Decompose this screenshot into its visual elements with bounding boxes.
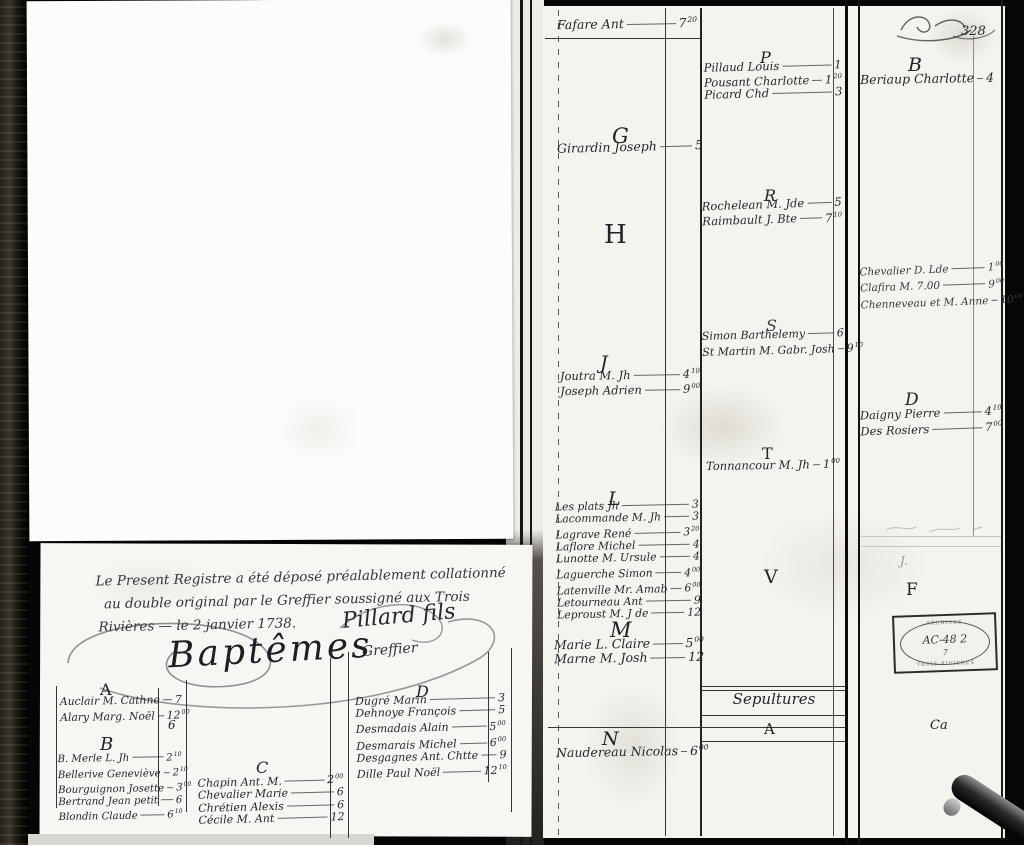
entry-value: 600: [684, 579, 700, 595]
entry-name: St Martin M. Gabr. Josh: [702, 342, 835, 358]
entry-name: Bellerive Geneviève: [58, 768, 161, 782]
entry-name: Beriaup Charlotte: [860, 71, 974, 87]
entry-value-sup: 00: [184, 781, 192, 788]
section-d-entries: Daigny Pierre410Des Rosiers700: [859, 402, 1002, 439]
rule-line: [701, 686, 845, 687]
entry-value: 210: [166, 749, 182, 764]
left-section-b-entries: B. Merle L. Jh210Bellerive Geneviève210B…: [57, 749, 182, 824]
faint-rule-line: [861, 546, 1001, 547]
entry-name: Joseph Adrien: [560, 384, 642, 398]
entry-value-sup: 00: [335, 772, 344, 780]
entry-value: 12: [688, 649, 704, 663]
entry-name: Blondin Claude: [58, 810, 137, 823]
leader-dash: [932, 427, 982, 430]
entry-value-sup: 00: [993, 419, 1002, 427]
leader-dash: [141, 814, 164, 815]
entry-value-sup: 10: [174, 751, 182, 758]
entry-name: Lunotte M. Ursule: [556, 552, 657, 566]
leader-dash: [808, 332, 834, 334]
section-g-entries: Girardin Joseph5: [557, 138, 703, 156]
entry-name: Alary Marg. Noël: [60, 709, 155, 724]
entry-value: 6: [176, 794, 183, 806]
register-entry: Joseph Adrien900: [560, 380, 700, 398]
leader-dash: [627, 23, 676, 25]
section-letter-f: F: [906, 580, 918, 600]
entry-value: 900: [988, 274, 1004, 291]
entry-value: 6: [837, 326, 844, 339]
leader-dash: [651, 612, 684, 614]
leader-dash: [622, 504, 689, 506]
leader-dash: [660, 556, 691, 558]
rule-line: [348, 652, 349, 838]
stray-value: 6: [168, 718, 176, 732]
leader-dash: [681, 751, 687, 752]
entry-value: 5: [498, 704, 505, 717]
entry-name: Naudereau Nicolas: [556, 744, 678, 760]
section-r-entries: Rochelean M. Jde5Raimbault J. Bte710: [702, 196, 843, 229]
entry-name: B. Merle L. Jh: [57, 753, 129, 766]
entry-name: Leproust M. J de: [557, 608, 649, 622]
entry-value: 300: [176, 779, 192, 794]
leader-dash: [653, 643, 682, 645]
register-entry: Cécile M. Ant12: [198, 812, 344, 828]
entry-name: Raimbault J. Bte: [702, 212, 797, 228]
entry-value: 9: [499, 749, 506, 762]
entry-value: 600: [490, 733, 507, 749]
entry-name: Laguerche Simon: [556, 568, 653, 582]
sepultures-heading: Sepultures: [714, 690, 834, 708]
leader-dash: [161, 799, 173, 800]
entry-name: Simon Barthelemy: [702, 327, 806, 343]
leader-dash: [943, 283, 985, 285]
entry-name: Girardin Joseph: [557, 139, 657, 156]
leader-dash: [812, 80, 822, 81]
register-entry: Beriaup Charlotte4: [860, 71, 988, 87]
rule-line: [701, 741, 845, 742]
entry-value-sup: 00: [996, 277, 1004, 284]
leader-dash: [167, 787, 173, 788]
entry-value: 600: [690, 741, 709, 758]
leader-dash: [807, 202, 831, 204]
entry-value-sup: 00: [995, 261, 1003, 268]
entry-name: Marne M. Josh: [554, 650, 648, 665]
page-content: Fafare Ant720 G Girardin Joseph5 H J Jou…: [0, 0, 1024, 845]
entry-name: Cécile M. Ant: [198, 813, 274, 828]
entry-value-sup: 00: [498, 735, 507, 743]
rule-line: [56, 686, 57, 808]
entry-value: 710: [825, 208, 843, 224]
left-section-c-entries: Chapin Ant. M.200Chevalier Marie6Chrétie…: [197, 770, 344, 828]
entry-value: 7: [175, 693, 182, 706]
leader-dash: [291, 792, 334, 794]
leader-dash: [158, 715, 164, 716]
entry-value-sup: 10: [833, 210, 842, 218]
leader-dash: [952, 267, 985, 269]
entry-value: 500: [685, 633, 704, 650]
scanned-register-spread: Fafare Ant720 G Girardin Joseph5 H J Jou…: [0, 0, 1024, 845]
entry-value: 610: [167, 806, 183, 821]
rule-line: [558, 10, 559, 836]
leader-dash: [645, 389, 680, 391]
faint-pencil-marks: [880, 518, 990, 540]
entry-name: Tonnancour M. Jh: [706, 458, 810, 473]
leader-dash: [443, 771, 480, 773]
entry-value: 910: [846, 339, 863, 355]
entry-value-sup: 10: [175, 808, 183, 815]
entry-value: 320: [683, 523, 699, 539]
leader-dash: [277, 817, 327, 819]
register-entry: Marne M. Josh12: [554, 649, 704, 665]
archive-stamp: ARCHIVES AC-48 2 7 TROIS-RIVIERES: [892, 612, 998, 674]
entry-name: Fafare Ant: [557, 17, 624, 32]
leader-dash: [656, 572, 682, 574]
entry-name: Chenneveau et M. Anne: [860, 295, 988, 312]
entry-value: 4: [693, 551, 700, 563]
register-entry: Naudereau Nicolas600: [556, 741, 698, 761]
entry-value: 3: [835, 86, 843, 98]
leader-dash: [287, 804, 334, 806]
entry-name: Desmadais Alain: [356, 722, 449, 737]
register-entry: Bourguignon Josette300: [58, 779, 182, 796]
entry-value: 1210: [483, 761, 507, 778]
leader-dash: [646, 600, 691, 602]
leader-dash: [943, 411, 981, 413]
entry-value: 5: [695, 138, 703, 152]
register-entry: Blondin Claude610: [58, 806, 182, 823]
entry-value: 100: [987, 258, 1003, 275]
leader-dash: [991, 299, 997, 300]
register-entry: Fafare Ant720: [557, 13, 697, 33]
rule-line: [833, 8, 834, 836]
entry-name: Dehnoye François: [355, 706, 456, 721]
entry-value-sup: 00: [699, 743, 709, 752]
leader-dash: [481, 754, 496, 755]
pen-scribble-mark: [895, 10, 999, 40]
page-edge-line: [845, 0, 848, 845]
section-p-entries: Pillaud Louis1Pousant Charlotte120Picard…: [704, 58, 843, 101]
entry-name: Clafira M. 7.00: [860, 280, 940, 296]
section-letter-h: H: [604, 220, 627, 250]
section-b-entries: Beriaup Charlotte4: [860, 71, 988, 87]
entry-value: 410: [683, 365, 700, 381]
sepultures-section-letter-a: A: [764, 720, 775, 738]
entry-value: 700: [985, 417, 1003, 433]
entry-value: 720: [678, 13, 697, 30]
stamp-bottom-text: TROIS-RIVIERES: [896, 659, 996, 668]
leader-dash: [452, 726, 487, 728]
leader-dash: [800, 218, 822, 220]
entry-value: 5: [834, 196, 842, 209]
section-letter-v: V: [764, 566, 778, 588]
section-m-entries: Marie L. Claire500Marne M. Josh12: [554, 633, 705, 666]
entry-value: 900: [683, 380, 700, 396]
entry-name: Lacommande M. Jh: [555, 512, 661, 526]
leader-dash: [670, 588, 681, 589]
leader-dash: [651, 657, 686, 659]
rule-line: [511, 648, 512, 812]
entry-value: 410: [984, 402, 1002, 418]
leader-dash: [132, 757, 163, 759]
leader-dash: [813, 464, 820, 465]
leader-dash: [838, 348, 844, 349]
mark-ca: Ca: [930, 718, 948, 733]
pen-object: [936, 772, 1024, 842]
entry-value-sup: 10: [498, 763, 507, 771]
entry-value: 400: [684, 563, 700, 579]
register-entry: Girardin Joseph5: [557, 138, 703, 156]
entry-value: 1: [834, 58, 842, 70]
entry-name: Pillaud Louis: [704, 60, 780, 74]
leader-dash: [430, 697, 495, 700]
section-top-entries: Fafare Ant720: [557, 13, 697, 33]
entry-value: 12: [687, 607, 701, 619]
entry-value-sup: 00: [691, 382, 700, 390]
rule-line: [701, 715, 845, 716]
entry-value-sup: 00: [831, 457, 840, 465]
leader-dash: [638, 544, 689, 546]
entry-value: 500: [489, 717, 506, 733]
entry-name: Des Rosiers: [860, 423, 929, 438]
entry-value: 210: [172, 764, 188, 779]
leader-dash: [660, 145, 692, 147]
rule-line: [665, 8, 666, 836]
leader-dash: [634, 374, 680, 376]
entry-value-sup: 10: [691, 367, 700, 375]
rule-line: [545, 38, 700, 39]
left-section-a-entries: Auclair M. Cathne7Alary Marg. Noël1200: [60, 693, 182, 724]
entry-value-sup: 00: [692, 581, 700, 589]
entry-value-sup: 10: [854, 341, 863, 349]
entry-value: 4: [986, 71, 994, 85]
entry-value-sup: 10: [993, 404, 1002, 412]
entry-name: Bertrand Jean petit: [58, 795, 158, 809]
entry-value-sup: 00: [497, 719, 506, 727]
leader-dash: [460, 742, 487, 744]
leader-dash: [772, 92, 832, 95]
entry-value: 1000: [1000, 290, 1023, 307]
section-s-entries: Simon Barthelemy6St Martin M. Gabr. Josh…: [702, 326, 845, 358]
register-entry: Alary Marg. Noël1200: [60, 706, 182, 724]
entry-name: Picard Chd: [704, 88, 769, 102]
entry-value-sup: 00: [181, 708, 189, 716]
leader-dash: [664, 516, 689, 518]
faint-letter-j: J.: [900, 554, 908, 568]
left-section-d-entries: Dugré Marin3Dehnoye François5Desmadais A…: [355, 692, 507, 781]
section-l-entries: Les plats Jh3Lacommande M. Jh3Lagrave Re…: [555, 499, 701, 623]
entry-value-sup: 00: [694, 635, 704, 644]
entry-value-sup: 20: [691, 525, 699, 533]
section-t-entries: Tonnancour M. Jh100: [706, 455, 840, 473]
entry-value-sup: 10: [180, 766, 188, 773]
leader-dash: [163, 699, 172, 700]
entry-value-sup: 20: [833, 72, 842, 80]
entry-value: 100: [823, 455, 840, 471]
entry-value: 3: [692, 511, 699, 523]
leader-dash: [634, 532, 680, 534]
leader-dash: [977, 78, 983, 79]
entry-name: Dille Paul Noël: [357, 767, 441, 782]
leader-dash: [164, 772, 170, 773]
rule-line: [548, 727, 845, 728]
entry-value: 12: [330, 812, 344, 825]
rule-line: [700, 8, 702, 836]
section-j-entries: Joutra M. Jh410Joseph Adrien900: [560, 365, 701, 398]
entry-value-sup: 20: [687, 15, 697, 24]
entry-name: Joutra M. Jh: [560, 369, 631, 383]
register-entry: Tonnancour M. Jh100: [706, 455, 840, 473]
leader-dash: [459, 710, 495, 712]
entry-name: Auclair M. Cathne: [60, 693, 160, 708]
leader-dash: [285, 779, 324, 781]
entry-value-sup: 00: [692, 565, 700, 573]
leader-dash: [782, 64, 831, 66]
entry-value-sup: 00: [1014, 293, 1022, 300]
section-n-entries: Naudereau Nicolas600: [556, 741, 698, 761]
entry-value: 200: [327, 770, 344, 787]
section-c-entries: Chevalier D. Lde100Clafira M. 7.00900Che…: [859, 258, 1005, 312]
